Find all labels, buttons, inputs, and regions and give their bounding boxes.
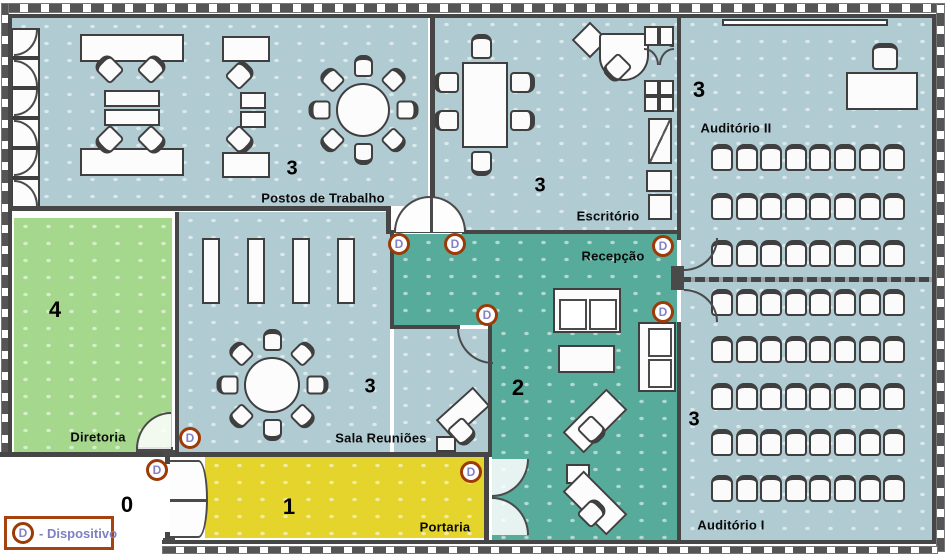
device-marker[interactable]: D: [388, 233, 410, 255]
zone-number-exterior: 0: [121, 492, 133, 518]
chair: [224, 58, 257, 91]
label-auditorio-i: Auditório I: [697, 518, 764, 533]
chair: [760, 240, 782, 267]
entrance-double-door: [170, 460, 208, 538]
chair: [736, 193, 758, 220]
chair: [226, 402, 255, 431]
label-portaria: Portaria: [420, 520, 471, 535]
chair: [883, 383, 905, 410]
device-marker[interactable]: D: [652, 301, 674, 323]
device-marker[interactable]: D: [652, 235, 674, 257]
device-marker[interactable]: D: [146, 459, 168, 481]
device-letter: D: [467, 465, 476, 479]
desk: [247, 238, 265, 304]
auditorium-partition-wall: [681, 277, 934, 282]
door-arc: [644, 48, 659, 65]
chair: [859, 289, 881, 316]
desk: [648, 194, 672, 220]
chair: [711, 193, 733, 220]
label-auditorio-ii: Auditório II: [701, 121, 772, 136]
chair: [510, 110, 535, 131]
door-sill: [163, 450, 175, 456]
chair: [226, 339, 255, 368]
chair: [859, 383, 881, 410]
legend-device-letter: D: [19, 526, 28, 540]
desk: [80, 34, 184, 62]
desk: [659, 96, 674, 112]
chair: [859, 336, 881, 363]
label-recepcao: Recepção: [581, 249, 644, 264]
chair: [834, 289, 856, 316]
chair: [760, 144, 782, 171]
chair: [859, 240, 881, 267]
wall-segment: [8, 14, 12, 456]
chair: [736, 475, 758, 502]
legend-device-marker-icon: D: [12, 522, 34, 544]
chair: [434, 72, 459, 93]
round-table: [244, 357, 300, 413]
door-arc: [136, 412, 171, 449]
desk: [104, 90, 160, 107]
chair: [785, 144, 807, 171]
desk: [659, 26, 674, 46]
desk: [337, 238, 355, 304]
device-letter: D: [153, 463, 162, 477]
chair: [736, 429, 758, 456]
chair: [834, 383, 856, 410]
device-letter: D: [483, 308, 492, 322]
desk: [104, 109, 160, 126]
chair: [263, 329, 282, 351]
chair: [834, 336, 856, 363]
chair: [883, 289, 905, 316]
outer-wall-bottom: [162, 546, 938, 554]
chair: [859, 475, 881, 502]
door-arc: [492, 497, 529, 535]
chair: [760, 289, 782, 316]
chair: [216, 376, 238, 395]
chair: [354, 143, 373, 165]
chair: [809, 383, 831, 410]
chair: [809, 429, 831, 456]
desk: [202, 238, 220, 304]
desk: [644, 96, 659, 112]
wall-segment: [932, 14, 936, 544]
chair: [883, 336, 905, 363]
wall-segment: [0, 452, 492, 457]
chair: [785, 289, 807, 316]
desk: [240, 111, 266, 128]
wall-segment: [175, 212, 179, 454]
chair: [883, 193, 905, 220]
wall-segment: [8, 14, 936, 18]
chair: [809, 336, 831, 363]
zone-number-recepcao: 2: [512, 375, 524, 401]
door-sill: [163, 538, 175, 544]
chair: [380, 64, 409, 93]
chair: [760, 475, 782, 502]
chair: [834, 475, 856, 502]
chair: [306, 376, 328, 395]
cabinet: [648, 118, 672, 164]
round-table: [336, 83, 390, 137]
desk: [292, 238, 310, 304]
device-marker[interactable]: D: [476, 304, 498, 326]
chair: [736, 336, 758, 363]
device-letter: D: [186, 431, 195, 445]
chair: [809, 289, 831, 316]
wall-segment: [10, 206, 390, 211]
device-marker[interactable]: D: [460, 461, 482, 483]
zone-number-sala: 3: [364, 376, 375, 399]
chair: [396, 101, 418, 120]
desk: [222, 152, 270, 178]
chair: [809, 193, 831, 220]
wall-segment: [390, 325, 460, 329]
desk: [722, 19, 888, 26]
outer-wall-top: [6, 3, 938, 13]
chair: [711, 336, 733, 363]
chair: [883, 144, 905, 171]
chair: [510, 72, 535, 93]
chair: [711, 144, 733, 171]
zone-number-auditorio-i: 3: [688, 409, 699, 432]
outer-wall-right: [936, 3, 945, 552]
device-letter: D: [395, 237, 404, 251]
wall-segment: [430, 16, 435, 206]
floor-plan: Postos de Trabalho Escritório Auditório …: [0, 0, 946, 554]
chair: [760, 336, 782, 363]
chair: [471, 151, 492, 176]
chair: [317, 64, 346, 93]
chair: [736, 240, 758, 267]
chair: [434, 110, 459, 131]
door-arc: [659, 48, 674, 65]
chair: [809, 240, 831, 267]
desk: [846, 72, 918, 110]
door-arc: [457, 328, 493, 364]
chair: [711, 383, 733, 410]
zone-number-diretoria: 4: [49, 297, 61, 323]
label-diretoria: Diretoria: [70, 430, 125, 445]
chair: [834, 240, 856, 267]
wall-segment: [677, 322, 681, 544]
chair: [785, 240, 807, 267]
chair: [834, 193, 856, 220]
zone-number-auditorio-ii: 3: [693, 77, 705, 103]
wall-segment: [462, 230, 681, 234]
legend-dispositivo: D - Dispositivo: [4, 516, 114, 550]
chair: [317, 127, 346, 156]
chair: [883, 240, 905, 267]
wall-segment: [677, 16, 681, 240]
chair: [289, 339, 318, 368]
chair: [289, 402, 318, 431]
chair: [859, 193, 881, 220]
device-marker[interactable]: D: [179, 427, 201, 449]
device-letter: D: [659, 305, 668, 319]
desk: [240, 92, 266, 109]
label-sala-reunioes: Sala Reuniões: [335, 431, 426, 446]
chair: [380, 127, 409, 156]
chair: [760, 429, 782, 456]
chair: [809, 475, 831, 502]
desk: [659, 80, 674, 96]
desk: [558, 345, 615, 373]
desk: [80, 148, 184, 176]
device-letter: D: [451, 237, 460, 251]
chair: [785, 383, 807, 410]
door-sill: [671, 266, 684, 290]
label-postos-de-trabalho: Postos de Trabalho: [261, 191, 385, 206]
chair: [736, 383, 758, 410]
chair: [785, 475, 807, 502]
chair: [736, 144, 758, 171]
door-arc: [492, 459, 529, 497]
chair: [785, 336, 807, 363]
chair: [760, 383, 782, 410]
chair: [859, 144, 881, 171]
desk: [644, 80, 659, 96]
desk: [462, 62, 508, 148]
chair: [760, 193, 782, 220]
legend-text: - Dispositivo: [39, 526, 117, 541]
chair: [711, 475, 733, 502]
chair: [354, 55, 373, 77]
sofa: [638, 322, 676, 392]
chair: [834, 429, 856, 456]
desk: [646, 170, 672, 192]
chair: [263, 419, 282, 441]
chair: [711, 429, 733, 456]
chair: [883, 429, 905, 456]
label-escritorio: Escritório: [577, 209, 640, 224]
double-door: [394, 196, 466, 232]
chair: [785, 193, 807, 220]
zone-number-escritorio: 3: [534, 175, 545, 198]
chair: [736, 289, 758, 316]
chair: [883, 475, 905, 502]
wall-segment: [162, 540, 936, 544]
desk: [644, 26, 659, 46]
chair: [785, 429, 807, 456]
chair: [471, 34, 492, 59]
sofa: [553, 288, 621, 333]
wall-segment: [484, 452, 489, 544]
chair: [872, 43, 898, 70]
chair: [809, 144, 831, 171]
desk: [222, 36, 270, 62]
zone-number-portaria: 1: [283, 494, 295, 520]
chair: [834, 144, 856, 171]
zone-number-postos: 3: [286, 158, 297, 181]
chair: [308, 101, 330, 120]
chair: [859, 429, 881, 456]
device-marker[interactable]: D: [444, 233, 466, 255]
device-letter: D: [659, 239, 668, 253]
